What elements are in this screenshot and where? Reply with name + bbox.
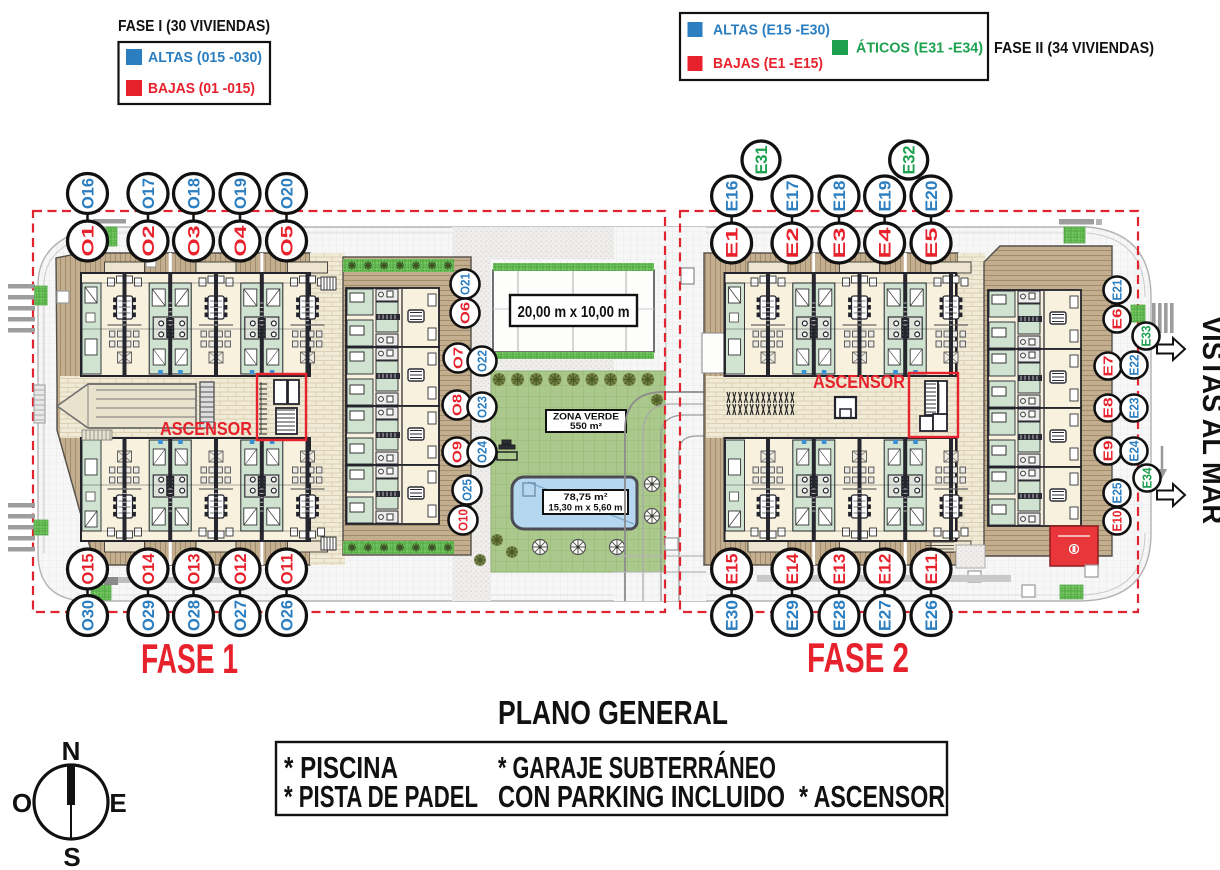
svg-text:E16: E16 [724,181,742,212]
svg-text:ASCENSOR: ASCENSOR [160,419,252,439]
svg-text:E30: E30 [724,600,742,631]
svg-text:O: O [12,788,32,818]
svg-text:15,30 m x 5,60 m: 15,30 m x 5,60 m [549,503,623,514]
svg-text:E31: E31 [753,146,771,175]
svg-text:ÁTICOS (E31 -E34): ÁTICOS (E31 -E34) [856,40,983,57]
svg-text:E3: E3 [831,228,849,259]
svg-text:O5: O5 [278,226,296,257]
svg-text:O22: O22 [476,350,490,372]
svg-text:O8: O8 [451,394,465,416]
svg-text:ALTAS (E15 -E30): ALTAS (E15 -E30) [713,23,830,39]
svg-text:ALTAS (015 -030): ALTAS (015 -030) [148,50,262,66]
svg-text:PLANO GENERAL: PLANO GENERAL [498,694,728,731]
svg-text:E17: E17 [784,181,802,212]
svg-text:O20: O20 [278,178,296,209]
svg-text:E26: E26 [923,600,941,631]
svg-text:E20: E20 [923,181,941,212]
svg-text:20,00 m x 10,00 m: 20,00 m x 10,00 m [518,304,630,321]
svg-text:O24: O24 [476,441,490,463]
svg-text:E5: E5 [923,228,941,259]
svg-text:E19: E19 [877,181,895,212]
svg-text:E15: E15 [724,554,742,585]
svg-text:O13: O13 [185,554,203,585]
svg-text:E7: E7 [1102,355,1116,376]
svg-text:E4: E4 [877,226,895,258]
svg-text:550 m²: 550 m² [570,421,602,431]
svg-text:FASE 2: FASE 2 [807,634,909,681]
svg-text:O25: O25 [461,479,475,501]
svg-text:O26: O26 [278,600,296,631]
svg-text:E9: E9 [1102,440,1116,461]
svg-text:E28: E28 [831,600,849,631]
svg-text:N: N [62,736,81,766]
svg-text:O12: O12 [232,554,250,585]
svg-text:O4: O4 [232,224,250,256]
svg-text:O2: O2 [140,226,158,257]
svg-text:O15: O15 [79,554,97,585]
svg-text:O3: O3 [185,226,203,257]
svg-text:E2: E2 [784,228,802,259]
svg-text:E22: E22 [1128,354,1142,375]
svg-text:E21: E21 [1111,279,1125,300]
svg-text:FASE I (30 VIVIENDAS): FASE I (30 VIVIENDAS) [118,18,270,35]
svg-text:E25: E25 [1111,482,1125,503]
svg-text:E13: E13 [831,554,849,585]
svg-text:O7: O7 [452,347,466,369]
svg-text:O17: O17 [140,178,158,209]
svg-text:O11: O11 [278,554,296,585]
svg-text:O16: O16 [79,178,97,209]
svg-text:E1: E1 [724,228,742,259]
svg-text:S: S [63,842,80,870]
svg-text:CON PARKING INCLUIDO: CON PARKING INCLUIDO [498,779,785,814]
svg-text:O30: O30 [79,600,97,631]
svg-text:O29: O29 [140,600,158,631]
svg-text:E10: E10 [1111,510,1125,531]
svg-text:O6: O6 [459,302,473,324]
svg-text:ASCENSOR: ASCENSOR [813,372,905,392]
svg-text:E24: E24 [1128,440,1142,461]
svg-text:FASE 1: FASE 1 [141,635,238,682]
svg-text:E11: E11 [923,554,941,585]
svg-text:O28: O28 [185,600,203,631]
svg-text:O14: O14 [140,553,158,585]
svg-text:O9: O9 [451,441,465,463]
svg-text:E: E [109,788,126,818]
svg-text:O19: O19 [232,178,250,209]
svg-text:O23: O23 [476,396,490,418]
svg-text:BAJAS (E1 -E15): BAJAS (E1 -E15) [713,56,823,72]
svg-text:VISTAS AL MAR: VISTAS AL MAR [1196,316,1220,524]
svg-text:78,75 m²: 78,75 m² [564,492,608,503]
svg-text:E29: E29 [784,600,802,631]
svg-text:O21: O21 [459,273,473,295]
svg-text:O10: O10 [457,509,471,531]
svg-text:* ASCENSOR: * ASCENSOR [799,779,945,814]
svg-text:BAJAS (01 -015): BAJAS (01 -015) [148,81,255,97]
svg-text:E12: E12 [877,554,895,585]
svg-text:E33: E33 [1140,325,1154,346]
svg-text:O27: O27 [232,600,250,631]
svg-text:E6: E6 [1111,308,1125,329]
svg-text:E14: E14 [784,553,802,585]
svg-text:E23: E23 [1128,397,1142,418]
svg-text:E18: E18 [831,181,849,212]
svg-text:* PISTA DE PADEL: * PISTA DE PADEL [284,779,478,814]
svg-text:E34: E34 [1141,467,1155,488]
svg-text:E27: E27 [877,600,895,631]
svg-text:FASE II (34 VIVIENDAS): FASE II (34 VIVIENDAS) [994,40,1154,57]
svg-text:E8: E8 [1102,397,1116,418]
svg-text:O18: O18 [185,178,203,209]
svg-text:O1: O1 [79,226,97,257]
svg-text:E32: E32 [901,146,919,175]
